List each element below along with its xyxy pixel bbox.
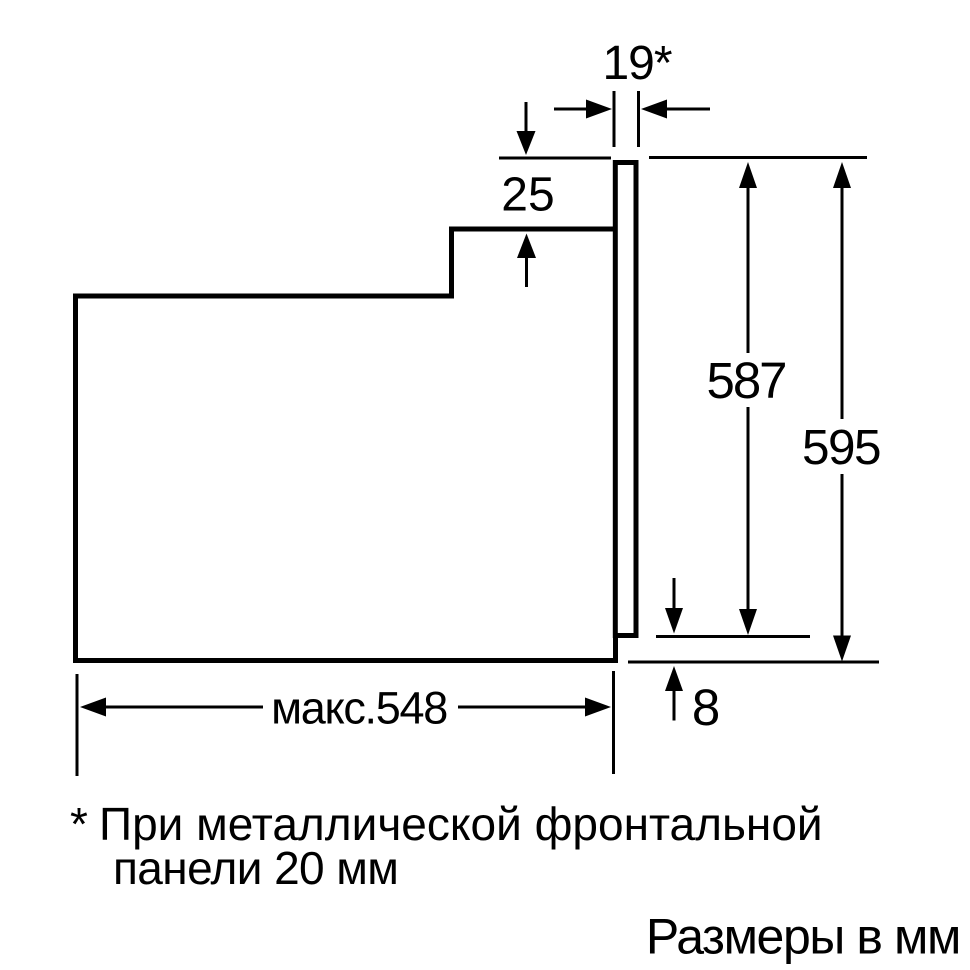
- svg-text:587: 587: [706, 352, 785, 409]
- svg-text:панели 20 мм: панели 20 мм: [113, 842, 398, 894]
- svg-text:макс.548: макс.548: [271, 683, 447, 734]
- svg-text:595: 595: [802, 420, 880, 475]
- svg-text:8: 8: [692, 679, 720, 736]
- svg-text:Размеры в мм: Размеры в мм: [646, 909, 960, 965]
- svg-text:25: 25: [501, 169, 554, 222]
- svg-text:19*: 19*: [602, 37, 671, 90]
- svg-text:*: *: [70, 798, 88, 850]
